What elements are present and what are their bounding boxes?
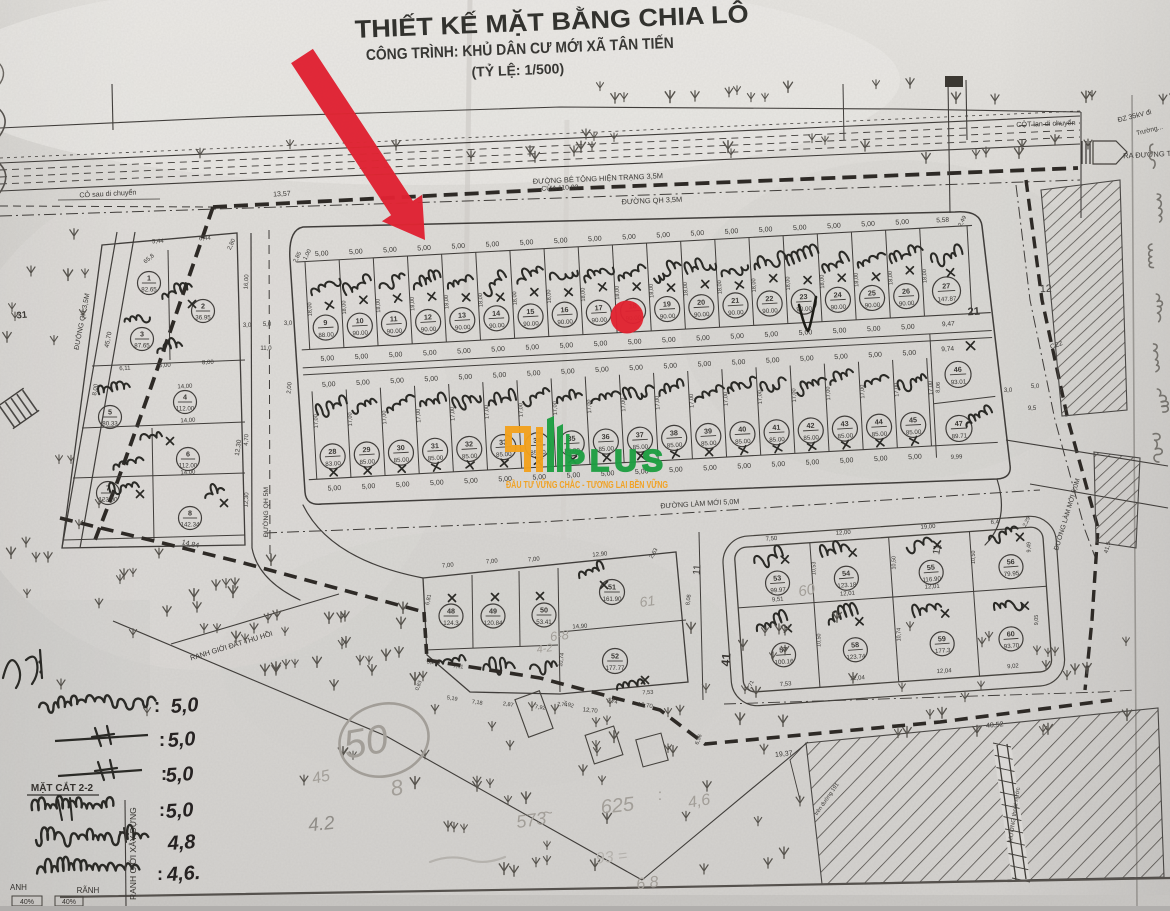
svg-text:5,00: 5,00 — [423, 350, 437, 358]
svg-text:9,99: 9,99 — [951, 454, 964, 461]
svg-text:90.00: 90.00 — [762, 307, 778, 315]
svg-text:41: 41 — [772, 423, 780, 432]
svg-text:4,6.: 4,6. — [165, 862, 201, 886]
svg-text:45: 45 — [311, 767, 332, 787]
svg-text:53.41: 53.41 — [536, 619, 552, 626]
svg-text:ANH: ANH — [10, 883, 27, 892]
svg-text:36: 36 — [601, 432, 609, 441]
svg-text:17,00: 17,00 — [928, 381, 935, 395]
svg-text:7,00: 7,00 — [442, 562, 455, 569]
svg-text:93.01: 93.01 — [951, 378, 967, 386]
svg-text:26: 26 — [902, 286, 910, 295]
svg-text:18,00: 18,00 — [751, 278, 758, 292]
svg-text:5,00: 5,00 — [554, 237, 568, 245]
svg-text:21: 21 — [731, 296, 739, 305]
svg-text:5,00: 5,00 — [458, 374, 472, 382]
svg-text:5,00: 5,00 — [662, 337, 676, 345]
svg-text:5,00: 5,00 — [383, 247, 397, 255]
svg-text:5,00: 5,00 — [356, 379, 370, 387]
svg-text:50: 50 — [540, 606, 548, 615]
svg-text:9,49: 9,49 — [1027, 542, 1033, 553]
svg-text:49: 49 — [489, 607, 497, 616]
svg-text:23: 23 — [799, 292, 807, 301]
svg-text:45: 45 — [909, 415, 917, 424]
svg-text:29: 29 — [362, 445, 370, 454]
svg-text:4-2: 4-2 — [536, 642, 553, 656]
svg-text:61: 61 — [638, 592, 656, 610]
svg-text:89.71: 89.71 — [951, 432, 967, 440]
svg-text:58: 58 — [851, 640, 860, 650]
svg-text:MẶT CẮT 2-2: MẶT CẮT 2-2 — [31, 781, 94, 794]
svg-text:18,00: 18,00 — [854, 273, 861, 287]
svg-text:6 8: 6 8 — [635, 874, 659, 894]
svg-text:5,00: 5,00 — [424, 376, 438, 384]
svg-text:5,0: 5,0 — [167, 728, 196, 752]
svg-text:90.00: 90.00 — [523, 320, 539, 328]
svg-text:5,00: 5,00 — [874, 455, 888, 463]
svg-text:85.00: 85.00 — [359, 458, 375, 466]
svg-text:5,58: 5,58 — [936, 217, 950, 225]
svg-text:112.00: 112.00 — [179, 463, 198, 470]
svg-text:18,00: 18,00 — [785, 276, 792, 290]
svg-text:9,5: 9,5 — [1028, 406, 1037, 412]
svg-text:5,00: 5,00 — [697, 361, 711, 369]
svg-text:5,00: 5,00 — [696, 335, 710, 343]
svg-text:85.00: 85.00 — [837, 432, 853, 440]
svg-text:5,00: 5,00 — [491, 346, 505, 354]
svg-text:5,0: 5,0 — [1031, 384, 1040, 390]
svg-text:1: 1 — [147, 274, 151, 283]
svg-text:5,0: 5,0 — [263, 322, 272, 328]
svg-text:112.00: 112.00 — [176, 406, 195, 413]
svg-text:9,02: 9,02 — [1007, 663, 1020, 670]
svg-text:18,00: 18,00 — [307, 302, 314, 316]
svg-text:5,00: 5,00 — [362, 483, 376, 491]
svg-text:161.90: 161.90 — [603, 596, 622, 603]
svg-text:5,00: 5,00 — [485, 241, 499, 249]
svg-text:14,90: 14,90 — [572, 623, 588, 630]
svg-text:5,00: 5,00 — [628, 338, 642, 346]
svg-text::: : — [159, 730, 165, 751]
svg-text:5,00: 5,00 — [355, 353, 369, 361]
svg-text:36.95: 36.95 — [195, 315, 211, 322]
svg-text:10,50: 10,50 — [971, 550, 977, 564]
svg-text:17,00: 17,00 — [416, 408, 423, 422]
svg-text:59: 59 — [938, 634, 947, 644]
svg-text:2: 2 — [201, 302, 205, 311]
svg-text:5,00: 5,00 — [622, 234, 636, 242]
svg-text:6,44: 6,44 — [199, 236, 212, 243]
svg-text:5,00: 5,00 — [669, 466, 683, 474]
svg-text:ĐƯỜNG QH 5M: ĐƯỜNG QH 5M — [261, 487, 270, 537]
svg-text:5,00: 5,00 — [527, 370, 541, 378]
svg-text:18,00: 18,00 — [410, 297, 417, 311]
svg-text:85.00: 85.00 — [906, 429, 922, 437]
svg-text:12,01: 12,01 — [925, 584, 941, 591]
svg-text:6,11: 6,11 — [119, 366, 131, 373]
svg-text:7,00: 7,00 — [528, 556, 541, 563]
svg-text:5,00: 5,00 — [759, 226, 773, 234]
svg-text:5,00: 5,00 — [561, 368, 575, 376]
svg-text:85.00: 85.00 — [735, 438, 751, 446]
svg-text:3: 3 — [140, 330, 144, 339]
svg-text:6-8: 6-8 — [549, 627, 570, 645]
svg-text:5,00: 5,00 — [834, 353, 848, 361]
svg-text:4.2: 4.2 — [307, 813, 336, 837]
svg-text:42: 42 — [806, 421, 814, 430]
svg-text:5,00: 5,00 — [320, 355, 334, 363]
svg-text:85.00: 85.00 — [496, 451, 512, 459]
svg-text:5,00: 5,00 — [349, 248, 363, 256]
svg-text:5,00: 5,00 — [861, 221, 875, 229]
svg-text:10,50: 10,50 — [891, 556, 897, 570]
svg-text:5,00: 5,00 — [396, 481, 410, 489]
svg-text:18,00: 18,00 — [649, 284, 656, 298]
svg-text:85.00: 85.00 — [667, 442, 683, 450]
svg-text:18,00: 18,00 — [615, 286, 622, 300]
svg-text:5,00: 5,00 — [451, 243, 465, 251]
svg-text:14,00: 14,00 — [180, 470, 196, 477]
svg-text:123.74: 123.74 — [846, 653, 866, 661]
svg-text:93.70: 93.70 — [1004, 642, 1020, 650]
svg-text:18,00: 18,00 — [546, 289, 553, 303]
svg-text:5,00: 5,00 — [457, 348, 471, 356]
svg-text:8,00: 8,00 — [202, 360, 215, 367]
svg-text:12: 12 — [424, 312, 432, 321]
svg-text:90.00: 90.00 — [728, 309, 744, 317]
svg-text:5,00: 5,00 — [690, 230, 704, 238]
svg-text:55: 55 — [927, 563, 936, 573]
svg-text:60: 60 — [1006, 629, 1015, 639]
svg-text:20: 20 — [697, 297, 705, 306]
svg-text::: : — [154, 696, 160, 717]
svg-text:11,0: 11,0 — [260, 346, 272, 352]
svg-text:14: 14 — [492, 309, 500, 318]
svg-text:31: 31 — [16, 310, 28, 322]
svg-text:5,00: 5,00 — [725, 228, 739, 236]
svg-text:5,00: 5,00 — [908, 453, 922, 461]
svg-text:13,57: 13,57 — [273, 191, 291, 199]
svg-text:177.3: 177.3 — [935, 647, 951, 655]
svg-text:5,00: 5,00 — [315, 250, 329, 258]
svg-text:5,00: 5,00 — [327, 485, 341, 493]
svg-text:14,00: 14,00 — [177, 384, 193, 391]
svg-text:5,00: 5,00 — [766, 357, 780, 365]
svg-text:85.00: 85.00 — [428, 455, 444, 463]
svg-text:17,00: 17,00 — [655, 396, 662, 410]
svg-text:3,0: 3,0 — [1004, 388, 1013, 394]
svg-text:8: 8 — [188, 509, 192, 518]
svg-text:5,00: 5,00 — [322, 381, 336, 389]
svg-text:9,47: 9,47 — [942, 321, 956, 329]
svg-text:46: 46 — [954, 365, 962, 374]
svg-text:32: 32 — [465, 439, 473, 448]
svg-text:9,05: 9,05 — [1034, 615, 1040, 626]
svg-text:39: 39 — [704, 426, 712, 435]
svg-text:~: ~ — [543, 805, 552, 822]
svg-text:90.00: 90.00 — [899, 300, 915, 308]
svg-text:5,00: 5,00 — [464, 478, 478, 486]
svg-text:10,53: 10,53 — [812, 562, 818, 576]
svg-text:40%: 40% — [20, 899, 34, 906]
svg-text:90.00: 90.00 — [865, 302, 881, 310]
svg-text:17,00: 17,00 — [347, 412, 354, 426]
svg-text:5,00: 5,00 — [663, 363, 677, 371]
svg-text:9,51: 9,51 — [772, 597, 785, 604]
svg-text:18,00: 18,00 — [683, 282, 690, 296]
svg-text:90.00: 90.00 — [352, 329, 368, 337]
svg-text:79.95: 79.95 — [1004, 570, 1020, 578]
svg-text:90.00: 90.00 — [591, 316, 607, 324]
svg-text:53: 53 — [773, 573, 782, 583]
svg-text:4: 4 — [183, 393, 187, 402]
svg-text:5,00: 5,00 — [833, 327, 847, 335]
svg-text:120.84: 120.84 — [484, 620, 503, 627]
svg-text:5,00: 5,00 — [806, 459, 820, 467]
svg-text:47: 47 — [954, 419, 962, 428]
svg-text::: : — [658, 787, 662, 804]
svg-text:PLUS: PLUS — [564, 443, 668, 478]
svg-text:17: 17 — [594, 303, 602, 312]
svg-text:142.34: 142.34 — [181, 522, 200, 529]
svg-text:4,8: 4,8 — [166, 831, 197, 855]
svg-text:3,0: 3,0 — [284, 321, 293, 327]
svg-text:5,00: 5,00 — [902, 350, 916, 358]
svg-text:41: 41 — [718, 652, 733, 667]
svg-text:18,00: 18,00 — [376, 298, 383, 312]
svg-text:5,00: 5,00 — [656, 232, 670, 240]
svg-text:90.00: 90.00 — [694, 311, 710, 319]
svg-text:93 =: 93 = — [595, 847, 628, 867]
svg-text:5,00: 5,00 — [895, 219, 909, 227]
svg-text:5: 5 — [108, 408, 112, 417]
svg-text:10: 10 — [355, 316, 363, 325]
svg-text:RÃNH: RÃNH — [77, 886, 100, 895]
svg-text:18,00: 18,00 — [717, 280, 724, 294]
svg-text:16: 16 — [560, 305, 568, 314]
svg-text:85.00: 85.00 — [393, 456, 409, 464]
svg-text:100.16: 100.16 — [774, 658, 794, 666]
svg-text:90.00: 90.00 — [455, 324, 471, 332]
svg-text::: : — [157, 864, 163, 884]
svg-text:90.00: 90.00 — [660, 313, 676, 321]
svg-text:124.3: 124.3 — [443, 620, 459, 627]
svg-text:5,00: 5,00 — [520, 239, 534, 247]
svg-text:6: 6 — [186, 450, 190, 459]
svg-text:5,00: 5,00 — [798, 329, 812, 337]
svg-text:85.00: 85.00 — [872, 431, 888, 439]
svg-text:38: 38 — [670, 428, 678, 437]
svg-text:85.00: 85.00 — [462, 453, 478, 461]
svg-text:28: 28 — [328, 447, 336, 456]
svg-text:10,50: 10,50 — [817, 633, 823, 647]
svg-text:ĐẦU TƯ VỮNG CHẮC - TƯƠNG LAI B: ĐẦU TƯ VỮNG CHẮC - TƯƠNG LAI BỀN VỮNG — [506, 478, 668, 491]
svg-text:5,00: 5,00 — [430, 479, 444, 487]
svg-text:18,00: 18,00 — [819, 274, 826, 288]
svg-text:147.87: 147.87 — [937, 295, 957, 303]
svg-text:7,50: 7,50 — [765, 536, 778, 543]
svg-text:5,00: 5,00 — [901, 324, 915, 332]
svg-text:21: 21 — [967, 306, 980, 319]
svg-text:5,00: 5,00 — [867, 326, 881, 334]
svg-text:18,00: 18,00 — [922, 269, 929, 283]
svg-text:5,00: 5,00 — [703, 465, 717, 473]
svg-text:19: 19 — [663, 299, 671, 308]
svg-text:56: 56 — [1006, 557, 1015, 567]
svg-text:7,00: 7,00 — [486, 558, 499, 565]
svg-text:5,00: 5,00 — [629, 364, 643, 372]
svg-text:37: 37 — [636, 430, 644, 439]
svg-text:2,00: 2,00 — [287, 381, 294, 394]
svg-text:17,00: 17,00 — [757, 390, 764, 404]
svg-text:5,00: 5,00 — [771, 461, 785, 469]
svg-text:24: 24 — [833, 290, 841, 299]
svg-text:6,00: 6,00 — [159, 363, 172, 370]
svg-text:12,00: 12,00 — [836, 530, 852, 537]
svg-text:40: 40 — [738, 424, 746, 433]
svg-text:15: 15 — [526, 307, 534, 316]
svg-text:5,00: 5,00 — [868, 351, 882, 359]
svg-text:17,00: 17,00 — [313, 414, 320, 428]
svg-text:16,00: 16,00 — [243, 274, 250, 290]
svg-text:5,00: 5,00 — [588, 235, 602, 243]
svg-text:8,06: 8,06 — [936, 382, 942, 393]
svg-text:5,00: 5,00 — [525, 344, 539, 352]
svg-text:90.00: 90.00 — [421, 326, 437, 334]
svg-text:18,00: 18,00 — [512, 291, 519, 305]
svg-text:9,74: 9,74 — [941, 346, 955, 354]
svg-text:12,04: 12,04 — [936, 668, 952, 675]
svg-text:6,4: 6,4 — [991, 519, 1000, 526]
svg-text:4,70: 4,70 — [244, 433, 251, 446]
svg-text:9: 9 — [323, 318, 327, 327]
svg-text:51: 51 — [608, 583, 616, 592]
svg-text:99.97: 99.97 — [770, 586, 786, 594]
svg-text:5,44: 5,44 — [152, 239, 165, 246]
svg-text:31: 31 — [431, 441, 439, 450]
svg-text:50: 50 — [340, 717, 391, 768]
svg-text:22: 22 — [765, 294, 773, 303]
svg-text:85.00: 85.00 — [769, 436, 785, 444]
svg-text:7,53: 7,53 — [780, 681, 793, 688]
svg-text:80.33: 80.33 — [102, 421, 118, 428]
svg-text:625: 625 — [600, 793, 636, 818]
svg-text:18,00: 18,00 — [580, 287, 587, 301]
svg-text:13: 13 — [458, 310, 466, 319]
svg-text:87.65: 87.65 — [134, 343, 150, 350]
svg-text:17,00: 17,00 — [826, 386, 833, 400]
svg-text:5,00: 5,00 — [737, 463, 751, 471]
svg-text:44: 44 — [875, 417, 883, 426]
svg-text:17,00: 17,00 — [484, 405, 491, 419]
svg-text:5,0: 5,0 — [165, 763, 194, 787]
svg-text:5,00: 5,00 — [389, 351, 403, 359]
svg-text:43: 43 — [840, 419, 848, 428]
svg-text:5,0: 5,0 — [170, 694, 199, 718]
svg-text:85.00: 85.00 — [701, 440, 717, 448]
svg-text:18,00: 18,00 — [444, 295, 451, 309]
svg-text:12,30: 12,30 — [243, 492, 250, 508]
svg-text:3,0: 3,0 — [243, 323, 252, 329]
svg-text:90.00: 90.00 — [830, 304, 846, 312]
svg-text:123.00: 123.00 — [99, 497, 118, 504]
svg-text:48: 48 — [447, 607, 455, 616]
svg-text:90.00: 90.00 — [489, 322, 505, 330]
svg-text:17,00: 17,00 — [450, 407, 457, 421]
svg-text:5,00: 5,00 — [827, 223, 841, 231]
svg-text:54: 54 — [842, 568, 851, 578]
svg-text:5,0: 5,0 — [165, 799, 194, 823]
svg-text:5,00: 5,00 — [594, 340, 608, 348]
svg-text:5,00: 5,00 — [732, 359, 746, 367]
svg-text:19,00: 19,00 — [920, 524, 936, 531]
svg-text:5,00: 5,00 — [493, 372, 507, 380]
svg-text:116.90: 116.90 — [922, 576, 941, 584]
svg-text:18,00: 18,00 — [341, 300, 348, 314]
svg-text:82.65: 82.65 — [141, 287, 157, 294]
svg-text:5,00: 5,00 — [390, 377, 404, 385]
svg-text:25: 25 — [868, 288, 876, 297]
svg-text:5,00: 5,00 — [559, 342, 573, 350]
svg-text:12,01: 12,01 — [840, 591, 856, 598]
svg-text:11: 11 — [390, 314, 398, 323]
svg-text:85.00: 85.00 — [803, 434, 819, 442]
svg-text:88.00: 88.00 — [318, 331, 334, 339]
svg-text:17,00: 17,00 — [791, 388, 798, 402]
svg-text:10,74: 10,74 — [896, 628, 902, 642]
svg-text:90.00: 90.00 — [557, 318, 573, 326]
svg-text:90.00: 90.00 — [386, 328, 402, 336]
svg-text:11: 11 — [692, 564, 704, 576]
svg-text:RANH GIỚI XÂY DỰNG: RANH GIỚI XÂY DỰNG — [128, 807, 138, 900]
svg-text:7,53: 7,53 — [642, 690, 653, 697]
svg-text:14,00: 14,00 — [180, 418, 196, 425]
svg-text:5,00: 5,00 — [800, 355, 814, 363]
svg-text:5,00: 5,00 — [417, 245, 431, 253]
svg-text:177.77: 177.77 — [606, 665, 625, 672]
svg-text:18,00: 18,00 — [478, 293, 485, 307]
svg-text:123.18: 123.18 — [837, 581, 857, 589]
svg-text:5,00: 5,00 — [793, 224, 807, 232]
svg-text:5,00: 5,00 — [764, 331, 778, 339]
svg-text:30: 30 — [396, 443, 404, 452]
svg-text:52: 52 — [611, 652, 619, 661]
svg-text:5,00: 5,00 — [730, 333, 744, 341]
svg-text:5,00: 5,00 — [840, 457, 854, 465]
svg-text:27: 27 — [942, 281, 950, 290]
svg-text:18,00: 18,00 — [888, 271, 895, 285]
svg-text:40%: 40% — [62, 899, 76, 906]
svg-text:5,00: 5,00 — [595, 366, 609, 374]
svg-text:83.00: 83.00 — [325, 460, 341, 468]
